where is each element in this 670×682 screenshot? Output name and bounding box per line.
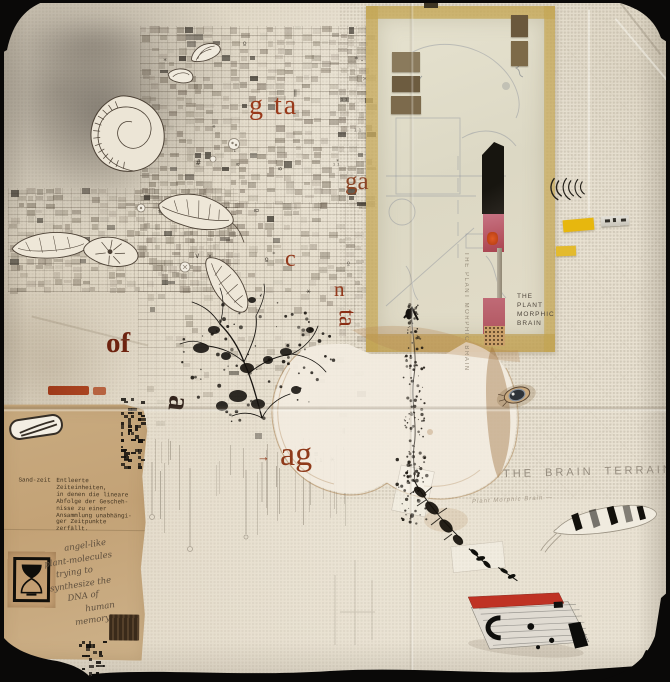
glyph-mark: * [301,289,310,294]
white-ruler-chip [601,215,629,226]
red-print-strip [48,386,89,395]
collage-letter-n: n [334,279,345,300]
tape-edge-bottom [366,334,555,352]
glyph-mark: # [158,207,163,216]
handwritten-note: angel-likeplant-moleculestrying tosynthe… [38,531,160,634]
glyph-mark: ₁ [342,447,345,453]
typed-label: Sand-zeit [18,478,50,485]
glyph-mark: ≡ [314,450,318,457]
glyph-mark: v [195,252,200,260]
glyph-mark: * [354,56,359,64]
glyph-mark: * [325,457,334,462]
collage-brown-rect [392,52,420,72]
glyph-mark: # [196,159,201,167]
glyph-mark: º [274,167,282,172]
glyph-mark: * [163,58,167,65]
glyph-mark: º [233,162,240,166]
collage-brown-rect [511,15,528,37]
collage-letter-ga: ga [345,169,369,194]
glyph-mark: º [249,208,258,213]
glyph-mark: ¹¹ [353,128,362,136]
collage-brown-rect [391,96,421,114]
artwork-photo: ¹¹º¹¹x₁v#·¹¹ºº**‖*º*º*ºx¹¹*#¹¹x≡₁*‖ [0,0,670,682]
vertical-strip-inscription: THE PLANT MORPHIC BRAIN [463,252,469,372]
inscription-line: THE [517,292,557,301]
orange-fleck [487,232,498,245]
glyph-mark: º [346,261,351,269]
glyph-mark: º [264,258,269,267]
collage-letter-ag: ag [280,438,312,472]
typed-note-body: Entleerte Zeiteinheiten,in denen die lin… [56,478,140,534]
yellow-paint-chip-small [556,246,576,257]
glyph-mark: ¹¹ [313,459,324,468]
collage-letter-gta: g ta [249,92,298,120]
glyph-mark: * [336,160,339,165]
collage-letter-c: c [285,247,296,271]
glyph-mark: ₁ [233,149,237,155]
collage-letter-of: of [106,329,130,358]
collage-letter-ta-rotated: ta [335,309,359,326]
plant-morphic-brain-inscription: THE PLANT MORPHIC BRAIN [517,292,557,328]
speckled-patch [484,326,505,346]
black-strip [482,142,504,214]
dark-wood-square [109,614,139,640]
inscription-line: MORPHIC [517,310,557,319]
attached-tan-note: Sand-zeit Entleerte Zeiteinheiten,in den… [0,403,148,660]
collage-brown-rect [511,41,528,66]
inscription-line: BRAIN [517,319,557,328]
dark-top-edge-mark [424,0,438,8]
glyph-mark: * [272,252,276,258]
collage-brown-rect [392,76,420,92]
red-print-strip-small [93,387,106,395]
paperclip-drawing [9,414,63,440]
glyph-mark: ¹¹ [340,98,348,105]
glyph-mark: x [208,253,212,259]
glyph-mark: * [209,124,216,128]
thin-strip [497,248,502,300]
glyph-mark: ¹¹ [220,205,228,214]
glyph-mark: ‖ [342,429,346,435]
inscription-line: PLANT [517,301,557,310]
collage-letter-a-rotated: a [163,394,196,413]
arrow-mark: → [257,450,270,463]
glyph-mark: º [242,42,247,51]
